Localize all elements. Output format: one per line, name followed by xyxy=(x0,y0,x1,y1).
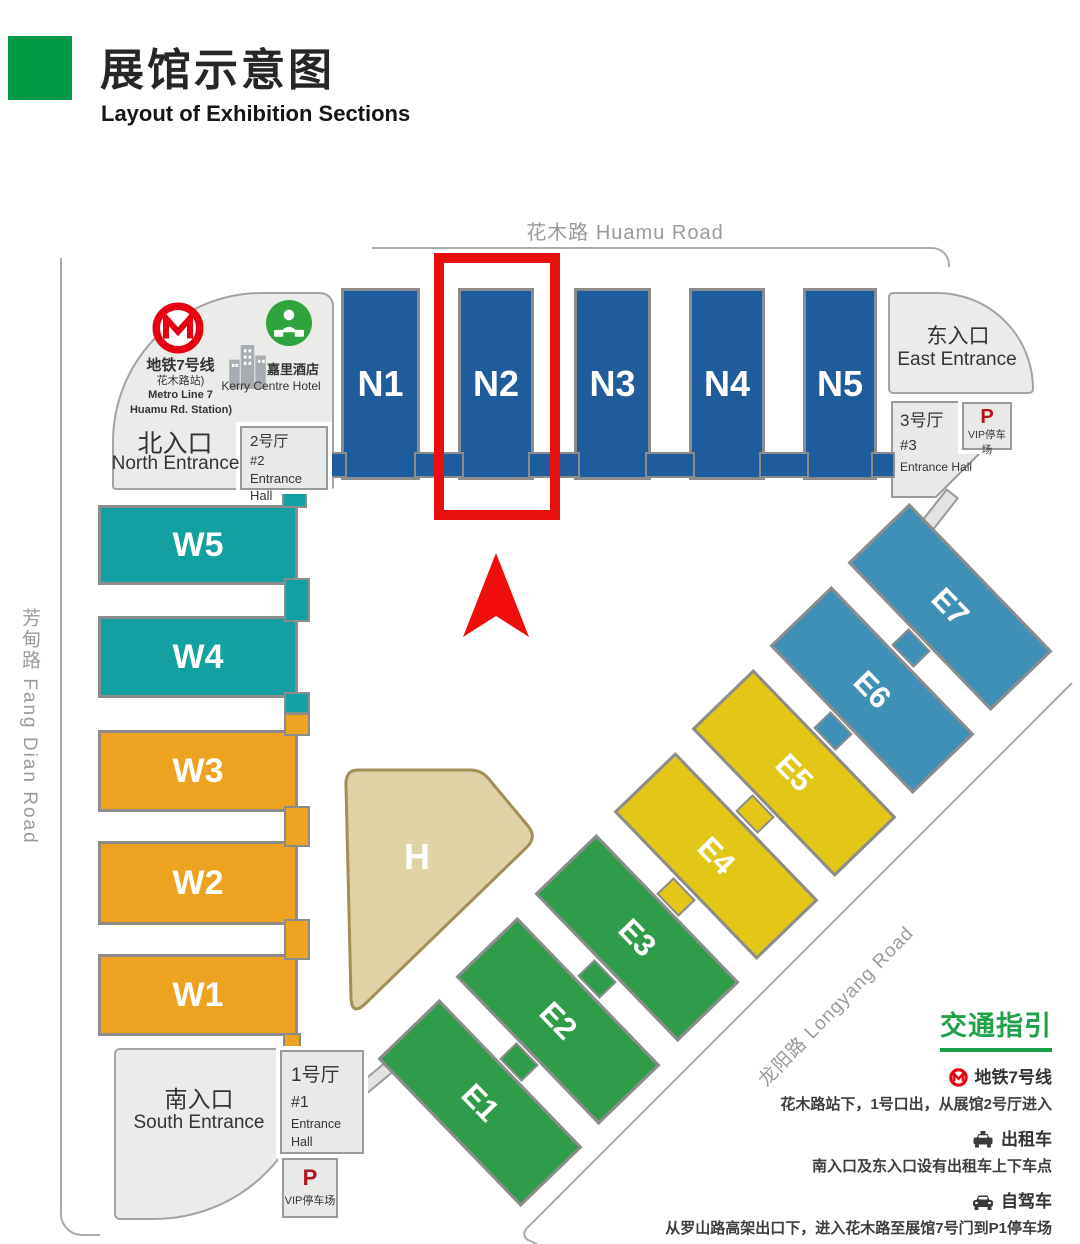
page-subtitle: Layout of Exhibition Sections xyxy=(101,101,410,127)
entrance-hall-2-box: 2号厅 #2 Entrance Hall xyxy=(240,426,328,490)
highlight-box-n2 xyxy=(434,253,560,520)
hotel-label-en: Kerry Centre Hotel xyxy=(215,379,327,393)
hall-connector xyxy=(284,713,310,736)
hall-w2: W2 xyxy=(98,841,298,925)
metro-station-label-en: Huamu Rd. Station) xyxy=(122,404,240,416)
traffic-taxi-head: 出租车 xyxy=(612,1125,1052,1150)
entrance-hall-3-text: 3号厅 #3 Entrance Hall xyxy=(900,408,972,476)
entrance-hall-3-num: #3 xyxy=(900,434,972,457)
entrance-hall-1-box: 1号厅 #1 Entrance Hall xyxy=(280,1050,364,1154)
hotel-icon xyxy=(266,300,312,346)
traffic-guide-title: 交通指引 xyxy=(940,1004,1052,1052)
north-arrow-icon xyxy=(463,553,529,637)
entrance-hall-3-zh: 3号厅 xyxy=(900,408,972,434)
hall-connector xyxy=(284,578,310,622)
metro-logo-icon xyxy=(151,301,205,355)
entrance-hall-1-num: #1 xyxy=(291,1091,362,1115)
entrance-hall-1-zh: 1号厅 xyxy=(291,1062,362,1091)
hall-h-label: H xyxy=(397,836,437,878)
hall-connector xyxy=(871,452,895,478)
hall-n4: N4 xyxy=(689,288,765,480)
entrance-hall-2-en: Entrance Hall xyxy=(250,470,326,505)
hall-connector xyxy=(284,919,310,960)
east-entrance-label-en: East Entrance xyxy=(882,349,1032,371)
traffic-taxi-desc: 南入口及东入口设有出租车上下车点 xyxy=(612,1155,1052,1176)
vip-parking-south-box: P VIP停车场 xyxy=(282,1158,338,1218)
entrance-hall-2-zh: 2号厅 xyxy=(250,432,326,452)
taxi-icon xyxy=(972,1131,994,1149)
entrance-hall-3-en: Entrance Hall xyxy=(900,458,972,477)
north-entrance-label-en: North Entrance xyxy=(103,453,248,475)
east-entrance-label-zh: 东入口 xyxy=(888,320,1028,350)
entrance-hall-2-num: #2 xyxy=(250,452,326,470)
hall-n1: N1 xyxy=(341,288,420,480)
page-title: 展馆示意图 xyxy=(100,34,335,98)
entrance-hall-1-en: Entrance Hall xyxy=(291,1115,362,1153)
hall-n5: N5 xyxy=(803,288,877,480)
hall-w3: W3 xyxy=(98,730,298,812)
vip-parking-label: VIP停车场 xyxy=(284,1192,336,1208)
car-icon xyxy=(972,1193,994,1211)
hotel-label-zh: 嘉里酒店 xyxy=(262,359,324,378)
parking-symbol: P xyxy=(284,1167,336,1189)
traffic-car-desc: 从罗山路高架出口下，进入花木路至展馆7号门到P1停车场 xyxy=(612,1217,1052,1238)
traffic-guide: 交通指引 地铁7号线 花木路站下，1号口出，从展馆2号厅进入 出租车 南入口及东… xyxy=(612,1004,1052,1238)
hall-connector xyxy=(284,806,310,847)
south-entrance-label-en: South Entrance xyxy=(113,1112,285,1134)
hall-w1: W1 xyxy=(98,954,298,1036)
hall-n3: N3 xyxy=(574,288,651,480)
hall-connector xyxy=(759,452,809,478)
metro-line-label-en: Metro Line 7 xyxy=(133,389,228,401)
metro-station-label-zh: 花木路站) xyxy=(133,372,228,388)
metro-icon xyxy=(949,1068,968,1087)
hall-w5: W5 xyxy=(98,505,298,585)
traffic-metro-head: 地铁7号线 xyxy=(612,1063,1052,1088)
traffic-metro-desc: 花木路站下，1号口出，从展馆2号厅进入 xyxy=(612,1093,1052,1114)
south-entrance-label-zh: 南入口 xyxy=(124,1080,274,1114)
exhibition-map: 展馆示意图 Layout of Exhibition Sections 花木路 … xyxy=(0,0,1080,1244)
hall-connector xyxy=(645,452,695,478)
traffic-car-head: 自驾车 xyxy=(612,1187,1052,1212)
hall-connector xyxy=(284,692,310,714)
hall-w4: W4 xyxy=(98,616,298,698)
